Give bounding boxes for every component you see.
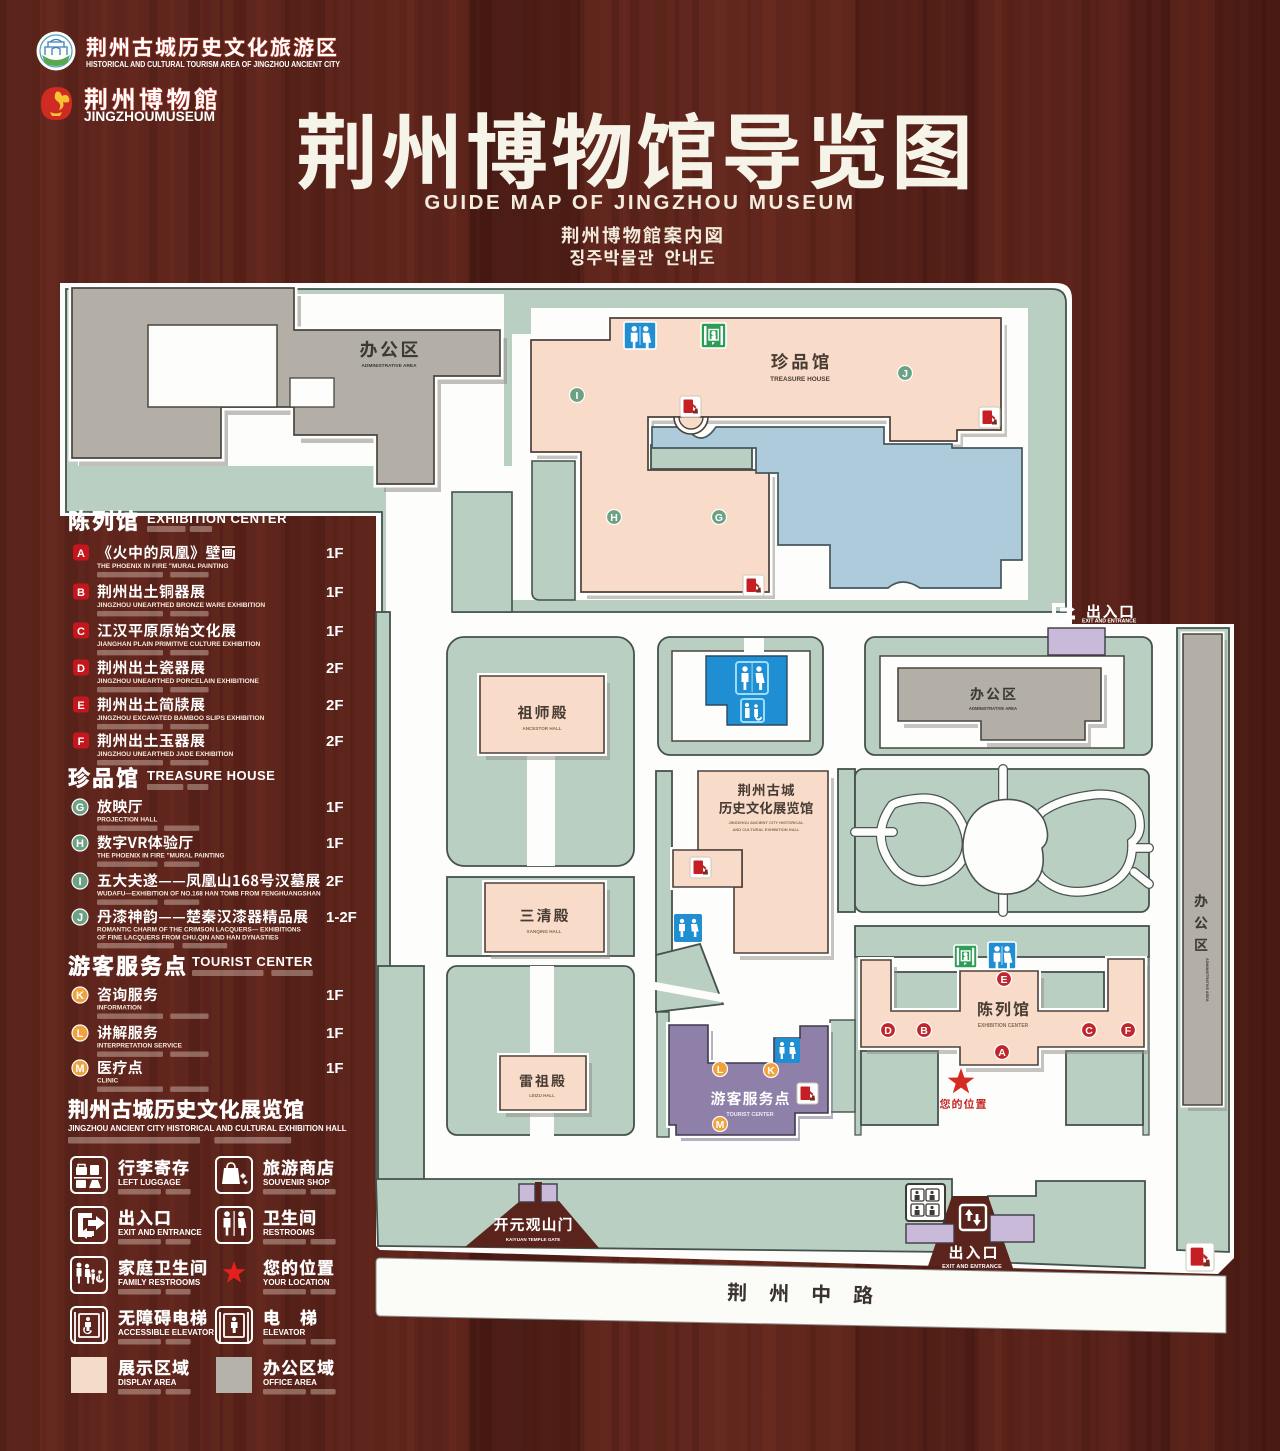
svg-text:JINGZHOU UNEARTHED PORCELAIN E: JINGZHOU UNEARTHED PORCELAIN EXHIBITIONE <box>97 678 260 685</box>
svg-text:E: E <box>77 700 84 712</box>
svg-text:G: G <box>76 802 85 814</box>
svg-text:M: M <box>75 1063 84 1075</box>
svg-text:I: I <box>78 876 81 888</box>
svg-text:WUDAFU—EXHIBITION OF NO.168 HA: WUDAFU—EXHIBITION OF NO.168 HAN TOMB FRO… <box>97 891 321 898</box>
svg-text:1F: 1F <box>326 1060 344 1077</box>
svg-text:J: J <box>77 912 83 924</box>
svg-text:2F: 2F <box>326 733 344 750</box>
svg-text:EXIT AND ENTRANCE: EXIT AND ENTRANCE <box>942 1264 1002 1270</box>
svg-text:SOUVENIR SHOP: SOUVENIR SHOP <box>263 1178 330 1187</box>
svg-text:INFORMATION: INFORMATION <box>97 1005 142 1012</box>
svg-text:1F: 1F <box>326 799 344 816</box>
svg-text:ROMANTIC CHARM OF THE CRIMSON: ROMANTIC CHARM OF THE CRIMSON LACQUERS— … <box>97 927 302 934</box>
svg-text:EXHIBITION CENTER: EXHIBITION CENTER <box>147 511 287 526</box>
svg-text:SANQING HALL: SANQING HALL <box>527 929 562 934</box>
svg-text:EXIT AND ENTRANCE: EXIT AND ENTRANCE <box>118 1228 202 1237</box>
svg-text:A: A <box>998 1047 1006 1059</box>
svg-text:1-2F: 1-2F <box>326 909 357 926</box>
svg-text:D: D <box>884 1025 892 1037</box>
svg-text:M: M <box>716 1119 725 1131</box>
svg-text:JINGZHOU UNEARTHED JADE EXHIBI: JINGZHOU UNEARTHED JADE EXHIBITION <box>97 751 234 758</box>
svg-text:ACCESSIBLE ELEVATOR: ACCESSIBLE ELEVATOR <box>118 1328 214 1337</box>
svg-text:OF FINE LACQUERS FROM CHU,QIN: OF FINE LACQUERS FROM CHU,QIN AND HAN DY… <box>97 935 279 942</box>
svg-text:2F: 2F <box>326 660 344 677</box>
svg-text:JINGZHOU EXCAVATED BAMBOO SLIP: JINGZHOU EXCAVATED BAMBOO SLIPS EXHIBITI… <box>97 715 265 722</box>
svg-text:JINGZHOU UNEARTHED BRONZE WARE: JINGZHOU UNEARTHED BRONZE WARE EXHIBITIO… <box>97 602 265 609</box>
svg-text:ADMINISTRATIVE AREA: ADMINISTRATIVE AREA <box>1205 958 1209 1002</box>
svg-text:J: J <box>902 368 908 380</box>
svg-text:K: K <box>767 1065 775 1077</box>
svg-text:D: D <box>77 663 85 675</box>
svg-text:FAMILY RESTROOMS: FAMILY RESTROOMS <box>118 1278 201 1287</box>
svg-text:1F: 1F <box>326 623 344 640</box>
svg-text:2F: 2F <box>326 873 344 890</box>
svg-text:TREASURE HOUSE: TREASURE HOUSE <box>147 768 275 783</box>
svg-text:LEFT LUGGAGE: LEFT LUGGAGE <box>118 1178 181 1187</box>
svg-text:L: L <box>77 1028 84 1040</box>
svg-text:G: G <box>715 512 723 524</box>
svg-text:F: F <box>78 736 85 748</box>
svg-text:L: L <box>717 1064 724 1076</box>
svg-text:C: C <box>1085 1025 1093 1037</box>
svg-text:EXHIBITION CENTER: EXHIBITION CENTER <box>978 1023 1029 1029</box>
svg-text:RESTROOMS: RESTROOMS <box>263 1228 315 1237</box>
svg-text:EXIT AND ENTRANCE: EXIT AND ENTRANCE <box>1082 619 1137 625</box>
svg-text:HISTORICAL AND CULTURAL TOURIS: HISTORICAL AND CULTURAL TOURISM AREA OF … <box>86 60 341 69</box>
svg-text:ELEVATOR: ELEVATOR <box>263 1328 305 1337</box>
svg-text:AND CULTURAL EXHIBITION HALL: AND CULTURAL EXHIBITION HALL <box>733 827 801 832</box>
svg-text:DISPLAY AREA: DISPLAY AREA <box>118 1378 177 1387</box>
svg-text:JIANGHAN PLAIN PRIMITIVE CULTU: JIANGHAN PLAIN PRIMITIVE CULTURE EXHIBIT… <box>97 641 261 648</box>
svg-text:THE PHOENIX IN FIRE "MURAL PAI: THE PHOENIX IN FIRE "MURAL PAINTING <box>97 853 224 860</box>
svg-text:B: B <box>920 1025 928 1037</box>
svg-text:H: H <box>76 838 84 850</box>
svg-text:TOURIST CENTER: TOURIST CENTER <box>726 1112 773 1118</box>
svg-text:JINGZHOUMUSEUM: JINGZHOUMUSEUM <box>84 109 215 124</box>
svg-text:1F: 1F <box>326 1025 344 1042</box>
svg-text:ANCESTOR HALL: ANCESTOR HALL <box>522 726 561 731</box>
svg-text:B: B <box>77 587 85 599</box>
svg-text:C: C <box>77 626 85 638</box>
svg-text:YOUR LOCATION: YOUR LOCATION <box>263 1278 330 1287</box>
svg-text:JINGZHOU ANCIENT CITY HISTORIC: JINGZHOU ANCIENT CITY HISTORICAL AND CUL… <box>68 1124 347 1133</box>
svg-text:GUIDE MAP OF JINGZHOU MUSEUM: GUIDE MAP OF JINGZHOU MUSEUM <box>424 191 855 214</box>
svg-text:1F: 1F <box>326 545 344 562</box>
svg-text:INTERPRETATION SERVICE: INTERPRETATION SERVICE <box>97 1043 183 1050</box>
svg-text:JINGZHOU ANCIENT CITY HISTORIC: JINGZHOU ANCIENT CITY HISTORICAL <box>728 820 804 825</box>
svg-text:E: E <box>1000 974 1007 986</box>
svg-text:THE PHOENIX IN FIRE "MURAL PAI: THE PHOENIX IN FIRE "MURAL PAINTING <box>97 563 228 570</box>
svg-text:K: K <box>76 990 84 1002</box>
svg-text:TOURIST CENTER: TOURIST CENTER <box>192 954 313 969</box>
svg-text:LEIZU HALL: LEIZU HALL <box>529 1093 555 1098</box>
svg-text:ADMINISTRATIVE AREA: ADMINISTRATIVE AREA <box>969 706 1017 711</box>
svg-text:KAIYUAN TEMPLE GATE: KAIYUAN TEMPLE GATE <box>506 1237 561 1242</box>
svg-text:1F: 1F <box>326 835 344 852</box>
svg-text:TREASURE HOUSE: TREASURE HOUSE <box>770 376 830 383</box>
svg-text:OFFICE AREA: OFFICE AREA <box>263 1378 317 1387</box>
svg-text:CLINIC: CLINIC <box>97 1078 119 1085</box>
svg-text:PROJECTION HALL: PROJECTION HALL <box>97 817 157 824</box>
svg-text:I: I <box>576 390 579 402</box>
svg-text:ADMINISTRATIVE AREA: ADMINISTRATIVE AREA <box>361 363 417 369</box>
svg-text:F: F <box>1125 1025 1132 1037</box>
svg-text:H: H <box>610 512 618 524</box>
svg-text:2F: 2F <box>326 697 344 714</box>
svg-text:A: A <box>77 548 85 560</box>
svg-text:1F: 1F <box>326 584 344 601</box>
svg-text:1F: 1F <box>326 987 344 1004</box>
